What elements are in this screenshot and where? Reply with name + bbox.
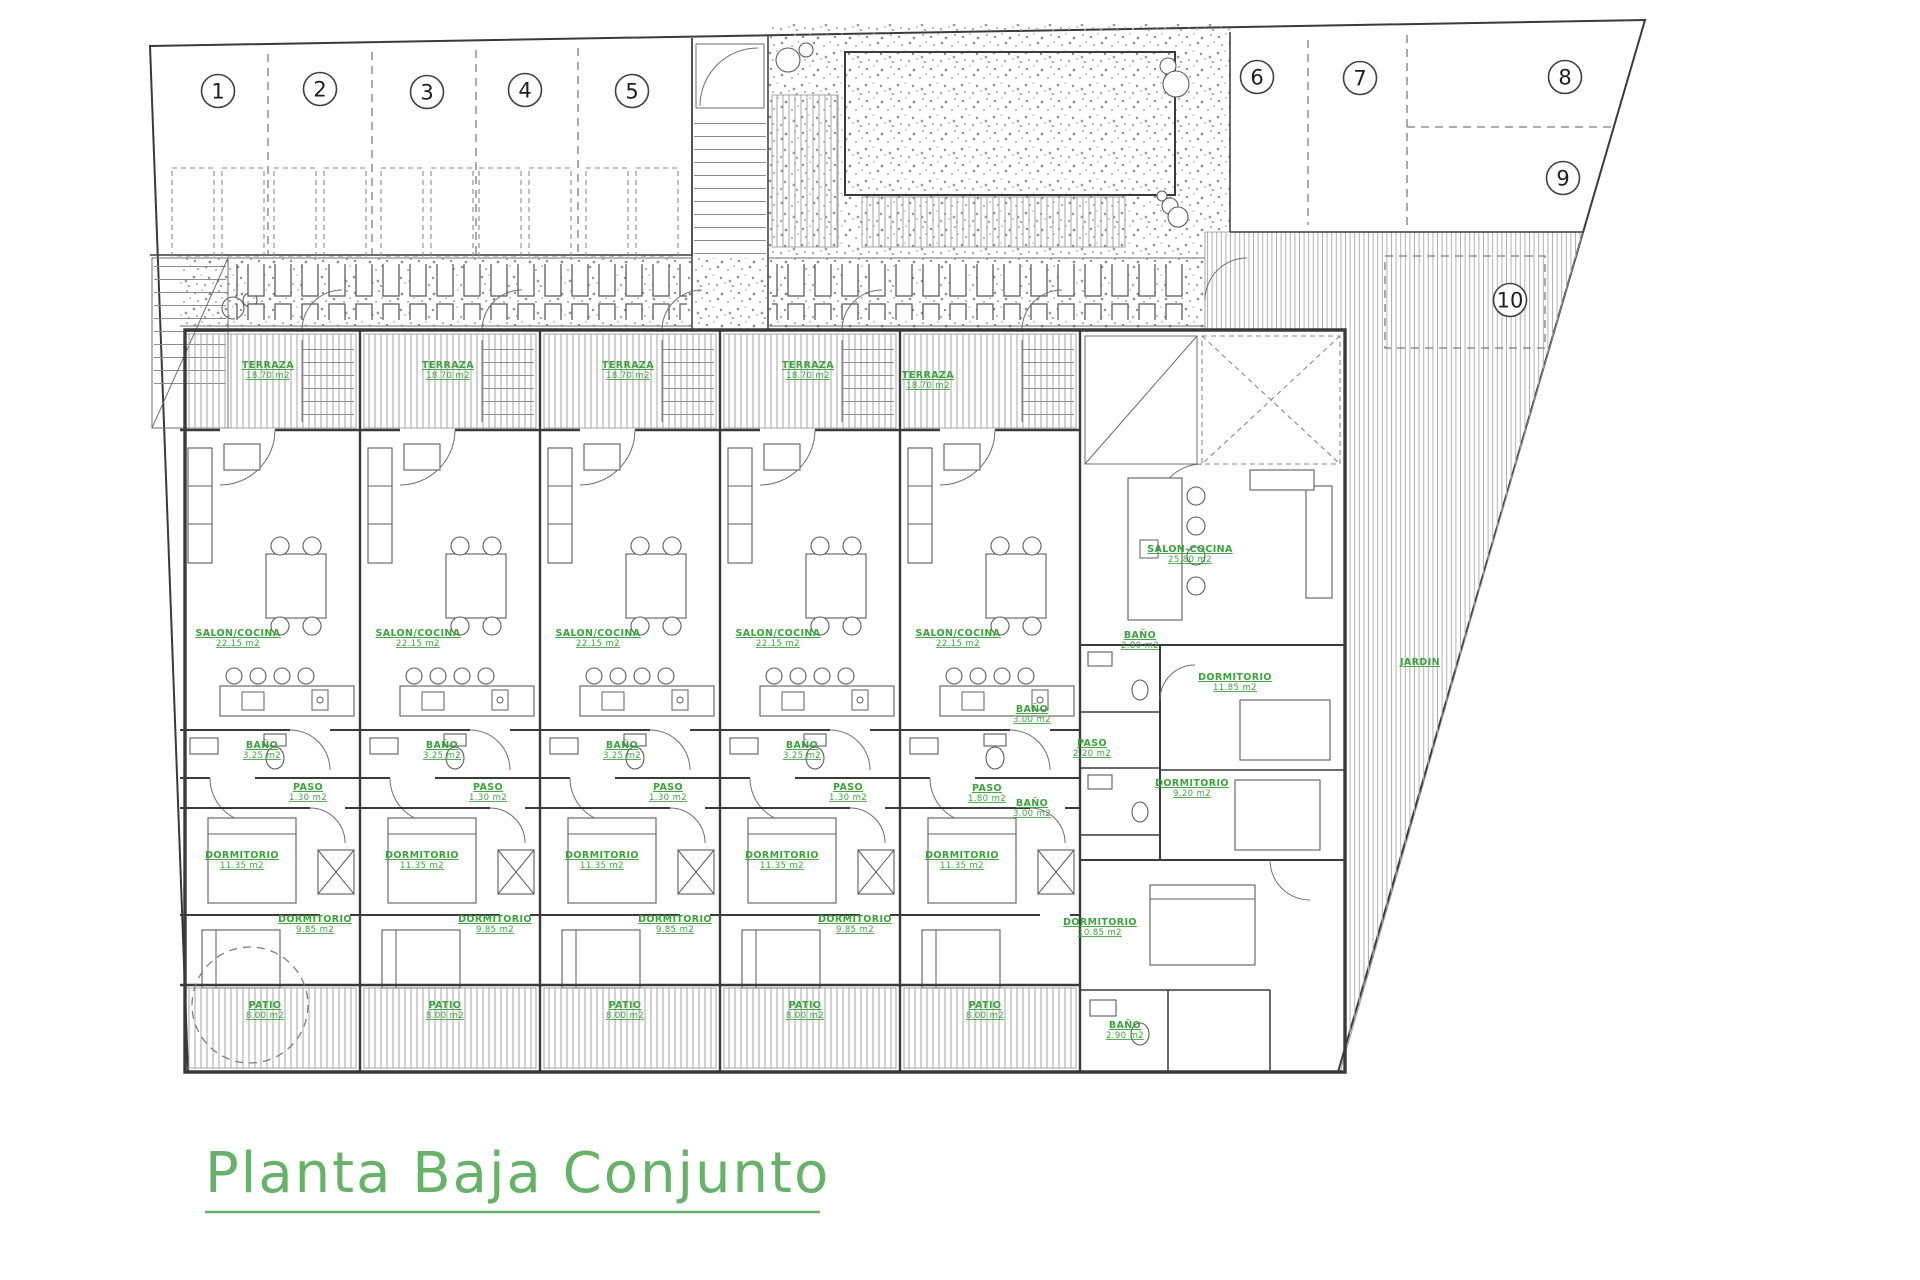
room-label: TERRAZA18.70 m2 [782,360,834,381]
svg-text:3: 3 [420,81,433,105]
room-label: SALON/COCINA22.15 m2 [735,628,820,649]
parking-badge: 10 [1494,284,1527,317]
room-label: DORMITORIO9.85 m2 [638,914,712,935]
room-label: SALON/COCINA22.15 m2 [195,628,280,649]
parking-area-left [150,38,692,256]
room-label: BAÑO2.80 m2 [1121,630,1159,651]
svg-text:10: 10 [1497,289,1524,313]
room-label: BAÑO3.25 m2 [783,740,821,761]
parking-badge: 1 [202,75,235,108]
room-label: TERRAZA18.70 m2 [422,360,474,381]
room-label: SALON/COCINA22.15 m2 [375,628,460,649]
room-label: PASO1.30 m2 [289,782,327,803]
room-label: DORMITORIO9.85 m2 [818,914,892,935]
room-label: TERRAZA18.70 m2 [602,360,654,381]
floor-plan-canvas: TERRAZA18.70 m2SALON/COCINA22.15 m2BAÑO3… [0,0,1920,1280]
room-label: PASO2.20 m2 [1073,738,1111,759]
room-label: PASO1.30 m2 [829,782,867,803]
room-label: DORMITORIO9.20 m2 [1155,778,1229,799]
parking-badge: 7 [1344,62,1377,95]
room-label: TERRAZA18.70 m2 [902,370,954,391]
floor-plan-page: TERRAZA18.70 m2SALON/COCINA22.15 m2BAÑO3… [0,0,1920,1280]
garden-area [1205,232,1583,1072]
room-label: BAÑO3.25 m2 [423,740,461,761]
room-label: BAÑO3.00 m2 [1013,704,1051,725]
parking-badge: 9 [1547,162,1580,195]
parking-area-right [1230,32,1613,232]
svg-text:6: 6 [1250,66,1263,90]
page-title: Planta Baja Conjunto [205,1141,830,1206]
parking-badge: 2 [304,73,337,106]
room-label: BAÑO2.90 m2 [1106,1020,1144,1041]
room-label: DORMITORIO11.85 m2 [1198,672,1272,693]
room-label: PASO1.30 m2 [649,782,687,803]
room-label: PASO1.80 m2 [968,783,1006,804]
svg-text:2: 2 [313,78,326,102]
room-label: BAÑO3.00 m2 [1013,798,1051,819]
room-label: TERRAZA18.70 m2 [242,360,294,381]
room-label: PATIO8.00 m2 [966,1000,1004,1021]
parking-badge: 5 [616,75,649,108]
entry-walkway [692,36,768,330]
room-label: BAÑO3.25 m2 [243,740,281,761]
parking-badge: 6 [1241,61,1274,94]
svg-text:8: 8 [1558,66,1571,90]
room-label: SALON/COCINA22.15 m2 [555,628,640,649]
room-label: SALON/COCINA22.15 m2 [915,628,1000,649]
parking-badge: 3 [411,76,444,109]
svg-text:9: 9 [1556,167,1569,191]
room-label: DORMITORIO9.85 m2 [458,914,532,935]
parking-badge: 4 [509,74,542,107]
room-label: JARDIN [1399,657,1440,668]
room-label: PATIO8.00 m2 [606,1000,644,1021]
room-label: PATIO8.00 m2 [246,1000,284,1021]
svg-text:4: 4 [518,79,531,103]
room-label: PASO1.30 m2 [469,782,507,803]
svg-text:1: 1 [211,80,224,104]
parking-badge: 8 [1549,61,1582,94]
room-label: DORMITORIO10.85 m2 [1063,917,1137,938]
room-label: PATIO8.00 m2 [426,1000,464,1021]
building-end-unit [1080,336,1345,1072]
room-label: BAÑO3.25 m2 [603,740,641,761]
svg-text:5: 5 [625,80,638,104]
room-label: DORMITORIO9.85 m2 [278,914,352,935]
drawing-title-block: Planta Baja Conjunto [205,1141,830,1212]
svg-text:7: 7 [1353,67,1366,91]
room-label: PATIO8.00 m2 [786,1000,824,1021]
